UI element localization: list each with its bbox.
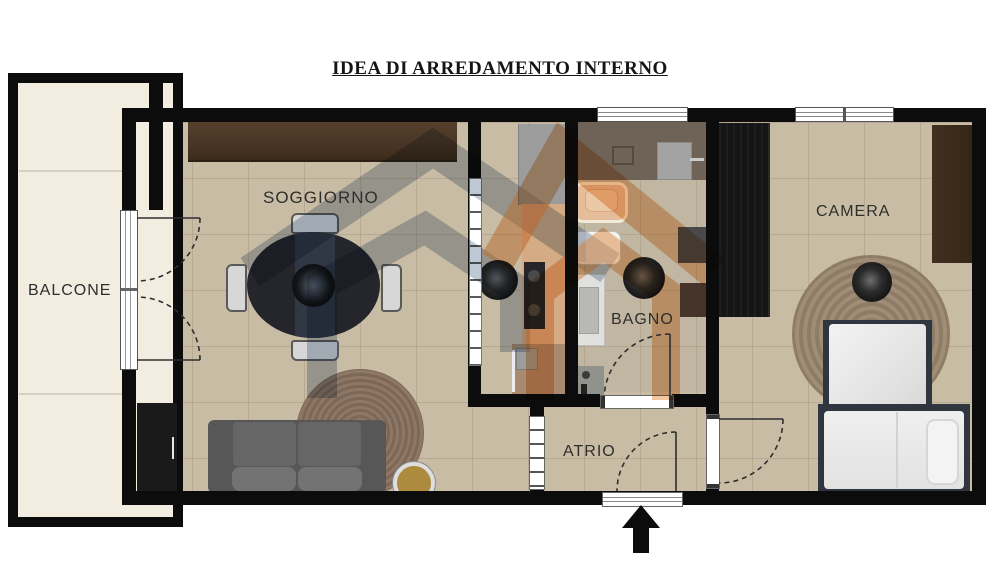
bed-vertical [823,320,932,408]
blanket-crease [896,412,898,488]
window-bagno [597,107,688,122]
threshold-soggiorno-atrio [529,416,545,490]
bathroom-sink-top [657,142,692,180]
wall-right [972,108,986,505]
toilet [574,231,621,265]
sideboard [188,122,457,162]
floor-plan-page: IDEA DI ARREDAMENTO INTERNO [0,0,1000,562]
wall-atrio-left-stub [530,394,544,417]
room-label-balcone: BALCONE [28,282,111,300]
french-door-balcone [120,210,138,370]
balcony-wall-stub [149,73,163,210]
washer-knob [581,384,587,394]
wall-bottom [122,491,986,505]
tub-pillow [585,189,618,212]
basin [579,287,599,334]
glazed-partition [469,178,482,366]
faucet [690,158,704,161]
dining-chair [291,340,339,361]
pendant-lamp [478,260,518,300]
sofa [208,420,386,493]
kitchen-base-cabinet [512,344,565,395]
dining-chair [226,264,247,312]
bed-horizontal [818,404,970,496]
sofa-seat-cushion [232,467,296,491]
burner [528,270,540,282]
entrance-arrow-icon [622,505,660,553]
mattress [829,324,926,408]
window-mullion [843,108,846,121]
dining-table [247,232,380,338]
door-mullion [121,288,137,291]
threshold-camera-door [706,414,720,489]
tv-cabinet [137,403,177,492]
bath-wall-cabinet [678,227,706,263]
sofa-back-cushion [233,422,296,466]
page-title: IDEA DI ARREDAMENTO INTERNO [0,58,1000,80]
washer-knob [582,371,590,379]
dining-chair [381,264,402,312]
cabinet-handle [512,350,515,392]
burner [528,304,540,316]
balcony-floor-line [19,393,123,395]
wall-cucina-bagno [565,122,578,394]
wardrobe-black [719,123,770,317]
kitchen-counter-top [518,124,566,205]
room-label-soggiorno: SOGGIORNO [263,188,379,208]
room-label-atrio: ATRIO [563,443,616,461]
window-camera [795,107,894,122]
room-label-bagno: BAGNO [611,311,674,329]
table-centerpiece [292,264,335,307]
shower-tray [612,146,634,165]
room-label-camera: CAMERA [816,203,890,221]
bath-wall-cabinet [680,283,706,317]
bathtub [573,182,628,223]
wardrobe-brown [932,125,972,263]
threshold-entry-door [602,492,683,507]
pendant-lamp [623,257,665,299]
sofa-seat-cushion [298,467,362,491]
kitchen-sink [516,348,538,370]
dining-chair [291,213,339,234]
threshold-bagno-door [600,395,674,409]
balcony-floor-line [19,170,123,172]
wall-bagno-camera [706,122,719,415]
cabinet-handle [172,437,174,459]
pillow [926,419,959,485]
cooktop [524,262,545,329]
sofa-back-cushion [298,422,361,466]
pendant-lamp [852,262,892,302]
